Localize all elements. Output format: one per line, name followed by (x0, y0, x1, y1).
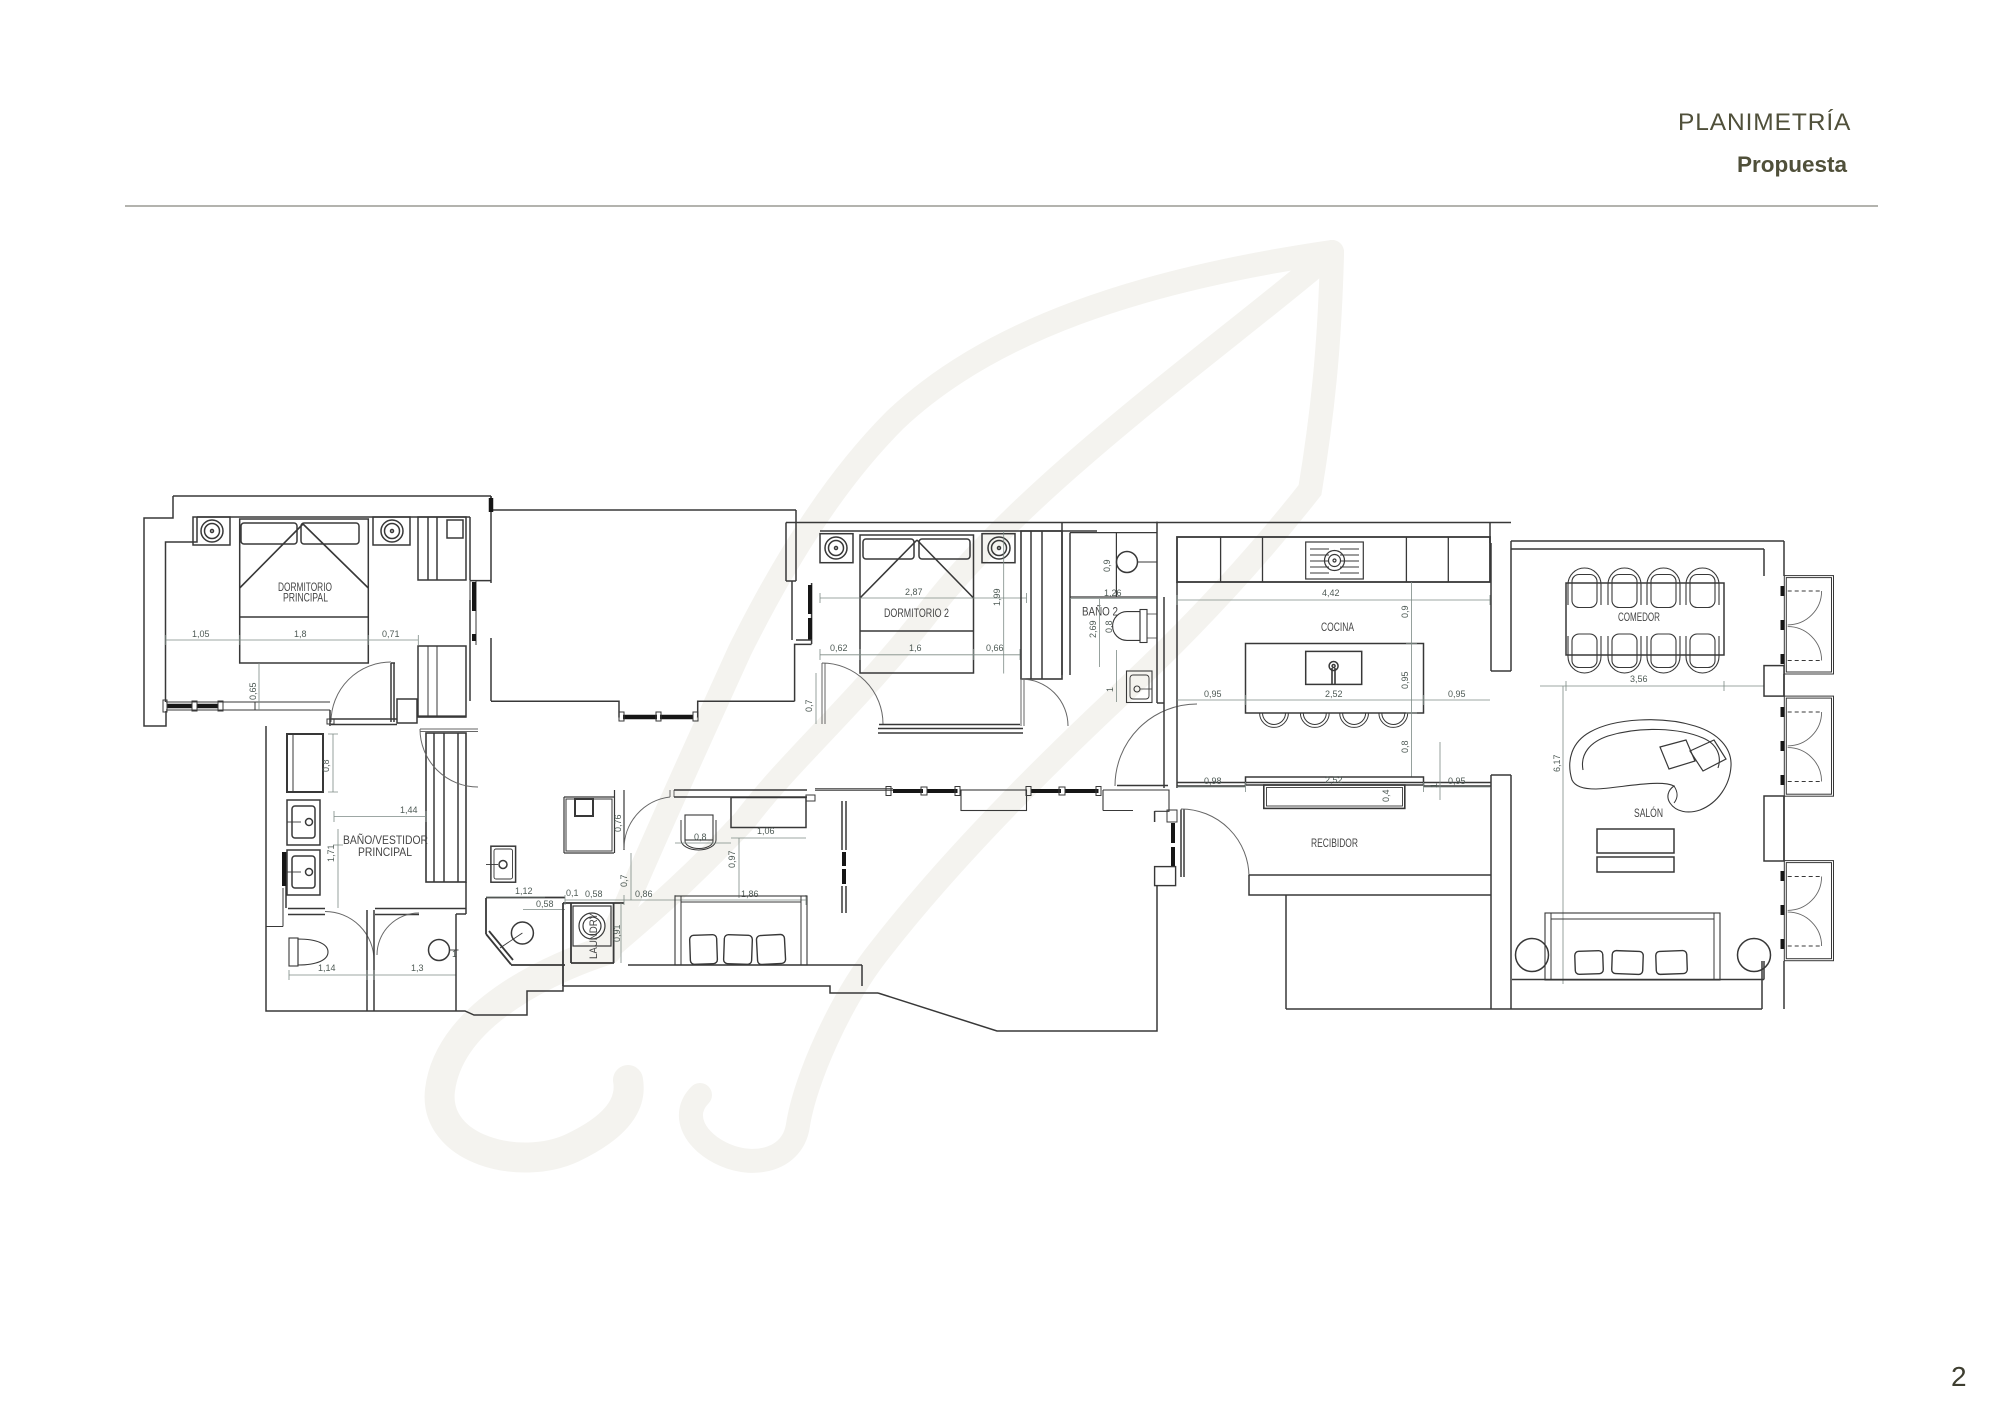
svg-text:0,95: 0,95 (1448, 689, 1466, 699)
svg-text:1,86: 1,86 (741, 889, 759, 899)
svg-text:0,1: 0,1 (566, 888, 579, 898)
svg-text:1,06: 1,06 (757, 826, 775, 836)
svg-text:1,44: 1,44 (400, 805, 418, 815)
svg-text:1: 1 (1429, 783, 1439, 788)
svg-text:0,97: 0,97 (727, 850, 737, 868)
svg-text:1,99: 1,99 (992, 588, 1002, 606)
svg-text:0,66: 0,66 (986, 643, 1004, 653)
svg-text:1,14: 1,14 (318, 963, 336, 973)
svg-text:Propuesta: Propuesta (1737, 152, 1848, 177)
svg-text:1,05: 1,05 (192, 629, 210, 639)
svg-text:1,12: 1,12 (515, 886, 533, 896)
svg-text:0,8: 0,8 (694, 832, 707, 842)
svg-text:0,4: 0,4 (1381, 789, 1391, 802)
svg-text:COMEDOR: COMEDOR (1618, 612, 1660, 624)
svg-text:2: 2 (1951, 1361, 1967, 1392)
svg-text:0,98: 0,98 (1204, 776, 1222, 786)
svg-text:0,86: 0,86 (635, 889, 653, 899)
svg-text:0,7: 0,7 (804, 699, 814, 712)
svg-text:1,71: 1,71 (326, 844, 336, 862)
svg-text:1,8: 1,8 (294, 629, 307, 639)
svg-text:4,42: 4,42 (1322, 588, 1340, 598)
svg-text:0,58: 0,58 (585, 889, 603, 899)
svg-text:2,52: 2,52 (1325, 689, 1343, 699)
svg-text:0,95: 0,95 (1448, 776, 1466, 786)
svg-text:2,52: 2,52 (1325, 775, 1343, 785)
svg-text:BAÑO/VESTIDOR: BAÑO/VESTIDOR (343, 834, 428, 847)
svg-text:0,95: 0,95 (1400, 671, 1410, 689)
svg-text:SALÓN: SALÓN (1634, 807, 1663, 820)
svg-text:0,8: 0,8 (1400, 740, 1410, 753)
svg-text:2,87: 2,87 (905, 587, 923, 597)
svg-text:0,91: 0,91 (612, 924, 622, 942)
svg-text:2,69: 2,69 (1088, 620, 1098, 638)
svg-text:0,9: 0,9 (1400, 605, 1410, 618)
svg-text:RECIBIDOR: RECIBIDOR (1311, 838, 1358, 850)
svg-text:0,8: 0,8 (321, 759, 331, 772)
svg-text:0,62: 0,62 (830, 643, 848, 653)
svg-text:0,58: 0,58 (536, 899, 554, 909)
svg-text:0,9: 0,9 (1102, 559, 1112, 572)
svg-text:LAUNDRY: LAUNDRY (588, 912, 600, 959)
svg-text:3,56: 3,56 (1630, 674, 1648, 684)
svg-text:COCINA: COCINA (1321, 622, 1354, 634)
svg-text:PRINCIPAL: PRINCIPAL (358, 847, 413, 859)
svg-text:1,6: 1,6 (909, 643, 922, 653)
svg-text:1,3: 1,3 (411, 963, 424, 973)
svg-text:0,95: 0,95 (1204, 689, 1222, 699)
svg-text:1: 1 (1105, 687, 1115, 692)
svg-text:DORMITORIO 2: DORMITORIO 2 (884, 608, 949, 620)
svg-text:1,26: 1,26 (1104, 588, 1122, 598)
svg-text:PRINCIPAL: PRINCIPAL (283, 593, 328, 605)
svg-text:BAÑO 2: BAÑO 2 (1082, 606, 1118, 619)
svg-text:0,7: 0,7 (619, 874, 629, 887)
svg-text:0,65: 0,65 (248, 682, 258, 700)
svg-text:PLANIMETRÍA: PLANIMETRÍA (1678, 109, 1851, 136)
svg-text:0,71: 0,71 (382, 629, 400, 639)
svg-text:6,17: 6,17 (1552, 754, 1562, 772)
svg-text:0,76: 0,76 (613, 814, 623, 832)
